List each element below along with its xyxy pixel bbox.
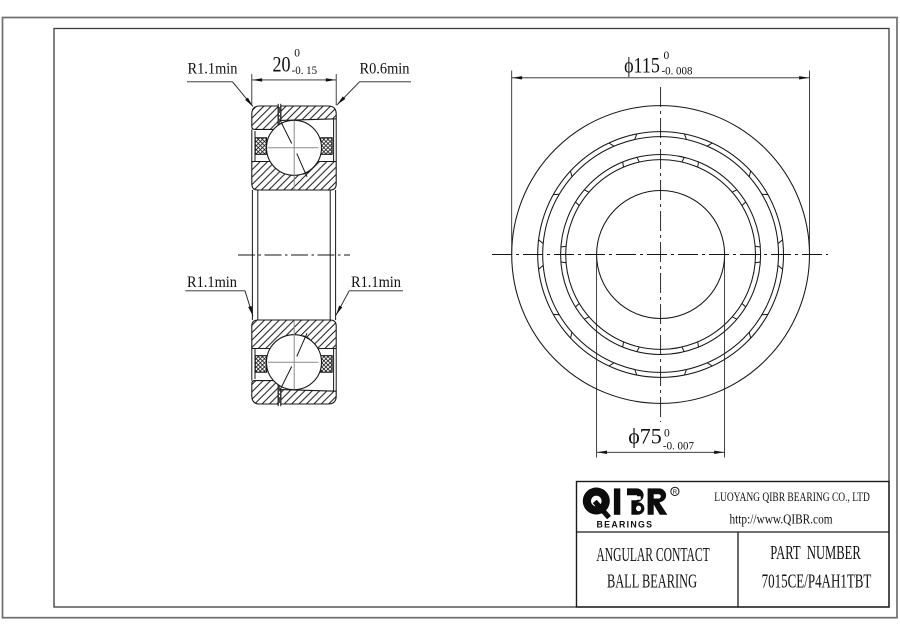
- svg-text:R: R: [673, 489, 678, 496]
- svg-text:7015CE/P4AH1TBT: 7015CE/P4AH1TBT: [762, 570, 872, 593]
- svg-text:R1.1min: R1.1min: [187, 61, 238, 78]
- svg-text:BALL BEARING: BALL BEARING: [607, 570, 697, 593]
- svg-text:http://www.QIBR.com: http://www.QIBR.com: [729, 512, 832, 527]
- svg-text:BEARINGS: BEARINGS: [597, 519, 654, 529]
- svg-text:-0. 008: -0. 008: [662, 65, 693, 77]
- svg-text:R1.1min: R1.1min: [351, 275, 402, 292]
- svg-text:LUOYANG QIBR BEARING CO., LTD: LUOYANG QIBR BEARING CO., LTD: [714, 491, 870, 505]
- svg-text:-0. 007: -0. 007: [663, 440, 694, 452]
- svg-text:-0. 15: -0. 15: [292, 65, 318, 77]
- svg-text:ϕ115: ϕ115: [624, 54, 660, 78]
- svg-text:ANGULAR CONTACT: ANGULAR CONTACT: [596, 543, 709, 566]
- svg-text:PART NUMBER: PART NUMBER: [770, 541, 861, 564]
- svg-text:0: 0: [664, 50, 670, 62]
- svg-text:ϕ75: ϕ75: [628, 424, 662, 449]
- svg-text:20: 20: [272, 53, 290, 77]
- svg-text:0: 0: [294, 47, 300, 59]
- svg-text:R1.1min: R1.1min: [187, 275, 238, 292]
- svg-text:0: 0: [664, 428, 670, 440]
- svg-text:R0.6min: R0.6min: [359, 61, 410, 78]
